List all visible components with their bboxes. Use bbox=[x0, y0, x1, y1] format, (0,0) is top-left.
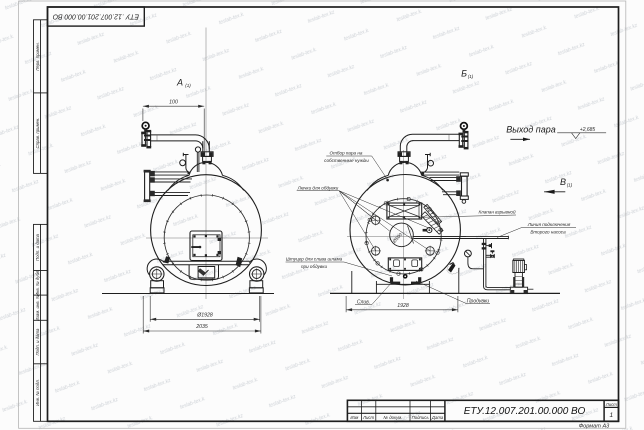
svg-text:Линия подключения: Линия подключения bbox=[527, 222, 571, 227]
svg-text:(1): (1) bbox=[468, 74, 474, 79]
svg-text:100: 100 bbox=[169, 99, 178, 105]
svg-text:Подп. и дата: Подп. и дата bbox=[35, 328, 40, 356]
svg-text:1: 1 bbox=[609, 412, 613, 419]
svg-text:Дата: Дата bbox=[431, 415, 444, 420]
svg-text:В: В bbox=[560, 177, 566, 187]
svg-text:Клапан взрывной: Клапан взрывной bbox=[478, 208, 516, 214]
svg-text:Инв. № дубл.: Инв. № дубл. bbox=[35, 270, 40, 296]
svg-text:Перв. примен.: Перв. примен. bbox=[35, 42, 40, 71]
svg-text:ЕТУ.12.007.201.00.000 ВО: ЕТУ.12.007.201.00.000 ВО bbox=[464, 406, 586, 417]
svg-text:Лист: Лист bbox=[362, 415, 374, 420]
svg-text:Отбор пара на: Отбор пара на bbox=[330, 150, 363, 155]
svg-text:Лючки для обдувки: Лючки для обдувки bbox=[297, 186, 339, 191]
svg-text:(1): (1) bbox=[185, 83, 191, 88]
svg-text:Лист: Лист bbox=[605, 402, 617, 407]
svg-text:Подп. и дата: Подп. и дата bbox=[35, 233, 40, 261]
svg-text:№ докум.: № докум. bbox=[383, 415, 402, 420]
svg-text:Ø1928: Ø1928 bbox=[196, 312, 213, 318]
svg-text:ЕТУ .12.007.201.00.000 ВО: ЕТУ .12.007.201.00.000 ВО bbox=[52, 13, 139, 20]
svg-text:Взам. инв. №: Взам. инв. № bbox=[35, 294, 40, 321]
svg-text:собственные нужды: собственные нужды bbox=[324, 158, 369, 163]
svg-text:А: А bbox=[176, 78, 183, 88]
svg-text:(1): (1) bbox=[567, 183, 573, 188]
svg-text:Инв. № подл.: Инв. № подл. bbox=[35, 379, 40, 406]
svg-text:Второго насоса: Второго насоса bbox=[530, 230, 566, 235]
svg-text:Изм: Изм bbox=[350, 415, 358, 420]
svg-text:1928: 1928 bbox=[397, 303, 409, 309]
svg-text:Б: Б bbox=[461, 69, 467, 79]
svg-text:Выход пара: Выход пара bbox=[506, 125, 555, 135]
svg-text:Справ. примен.: Справ. примен. bbox=[35, 118, 40, 149]
svg-text:+2,685: +2,685 bbox=[580, 127, 596, 133]
svg-text:при обдувки: при обдувки bbox=[301, 264, 327, 269]
svg-text:2035: 2035 bbox=[195, 324, 208, 330]
svg-text:Формат А3: Формат А3 bbox=[579, 424, 610, 430]
svg-text:Штуцер для слива шлама: Штуцер для слива шлама bbox=[286, 257, 343, 262]
svg-text:Подпись: Подпись bbox=[412, 415, 430, 420]
